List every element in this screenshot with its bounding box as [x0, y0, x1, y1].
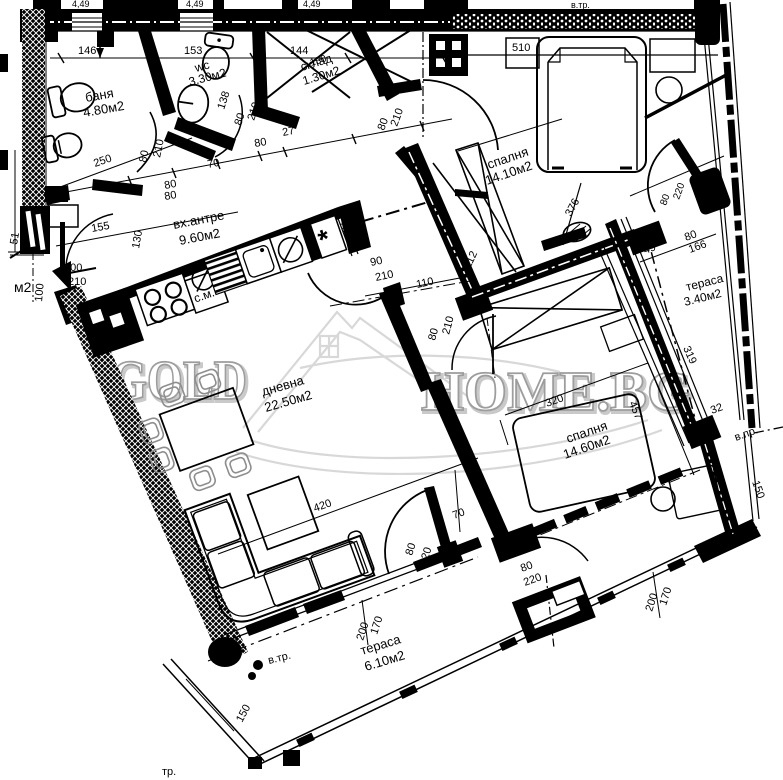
svg-text:4,49: 4,49 — [72, 0, 90, 9]
svg-text:90: 90 — [369, 255, 383, 269]
svg-text:в.тр.: в.тр. — [364, 0, 383, 10]
svg-text:510: 510 — [512, 42, 530, 54]
svg-text:тр.: тр. — [162, 766, 176, 778]
svg-text:80: 80 — [253, 136, 267, 150]
svg-text:м2: м2 — [14, 279, 32, 295]
svg-text:146: 146 — [78, 45, 96, 57]
svg-text:100: 100 — [33, 283, 47, 302]
svg-text:70: 70 — [206, 157, 220, 171]
svg-text:80: 80 — [137, 149, 151, 163]
svg-text:HOME.BG: HOME.BG — [421, 361, 690, 423]
svg-text:80: 80 — [163, 189, 177, 203]
svg-text:144: 144 — [290, 45, 308, 57]
svg-text:153: 153 — [184, 45, 202, 57]
svg-text:в.тр.: в.тр. — [571, 0, 590, 10]
svg-text:4,49: 4,49 — [303, 0, 321, 9]
svg-text:4,49: 4,49 — [186, 0, 204, 9]
svg-text:27: 27 — [281, 125, 295, 139]
